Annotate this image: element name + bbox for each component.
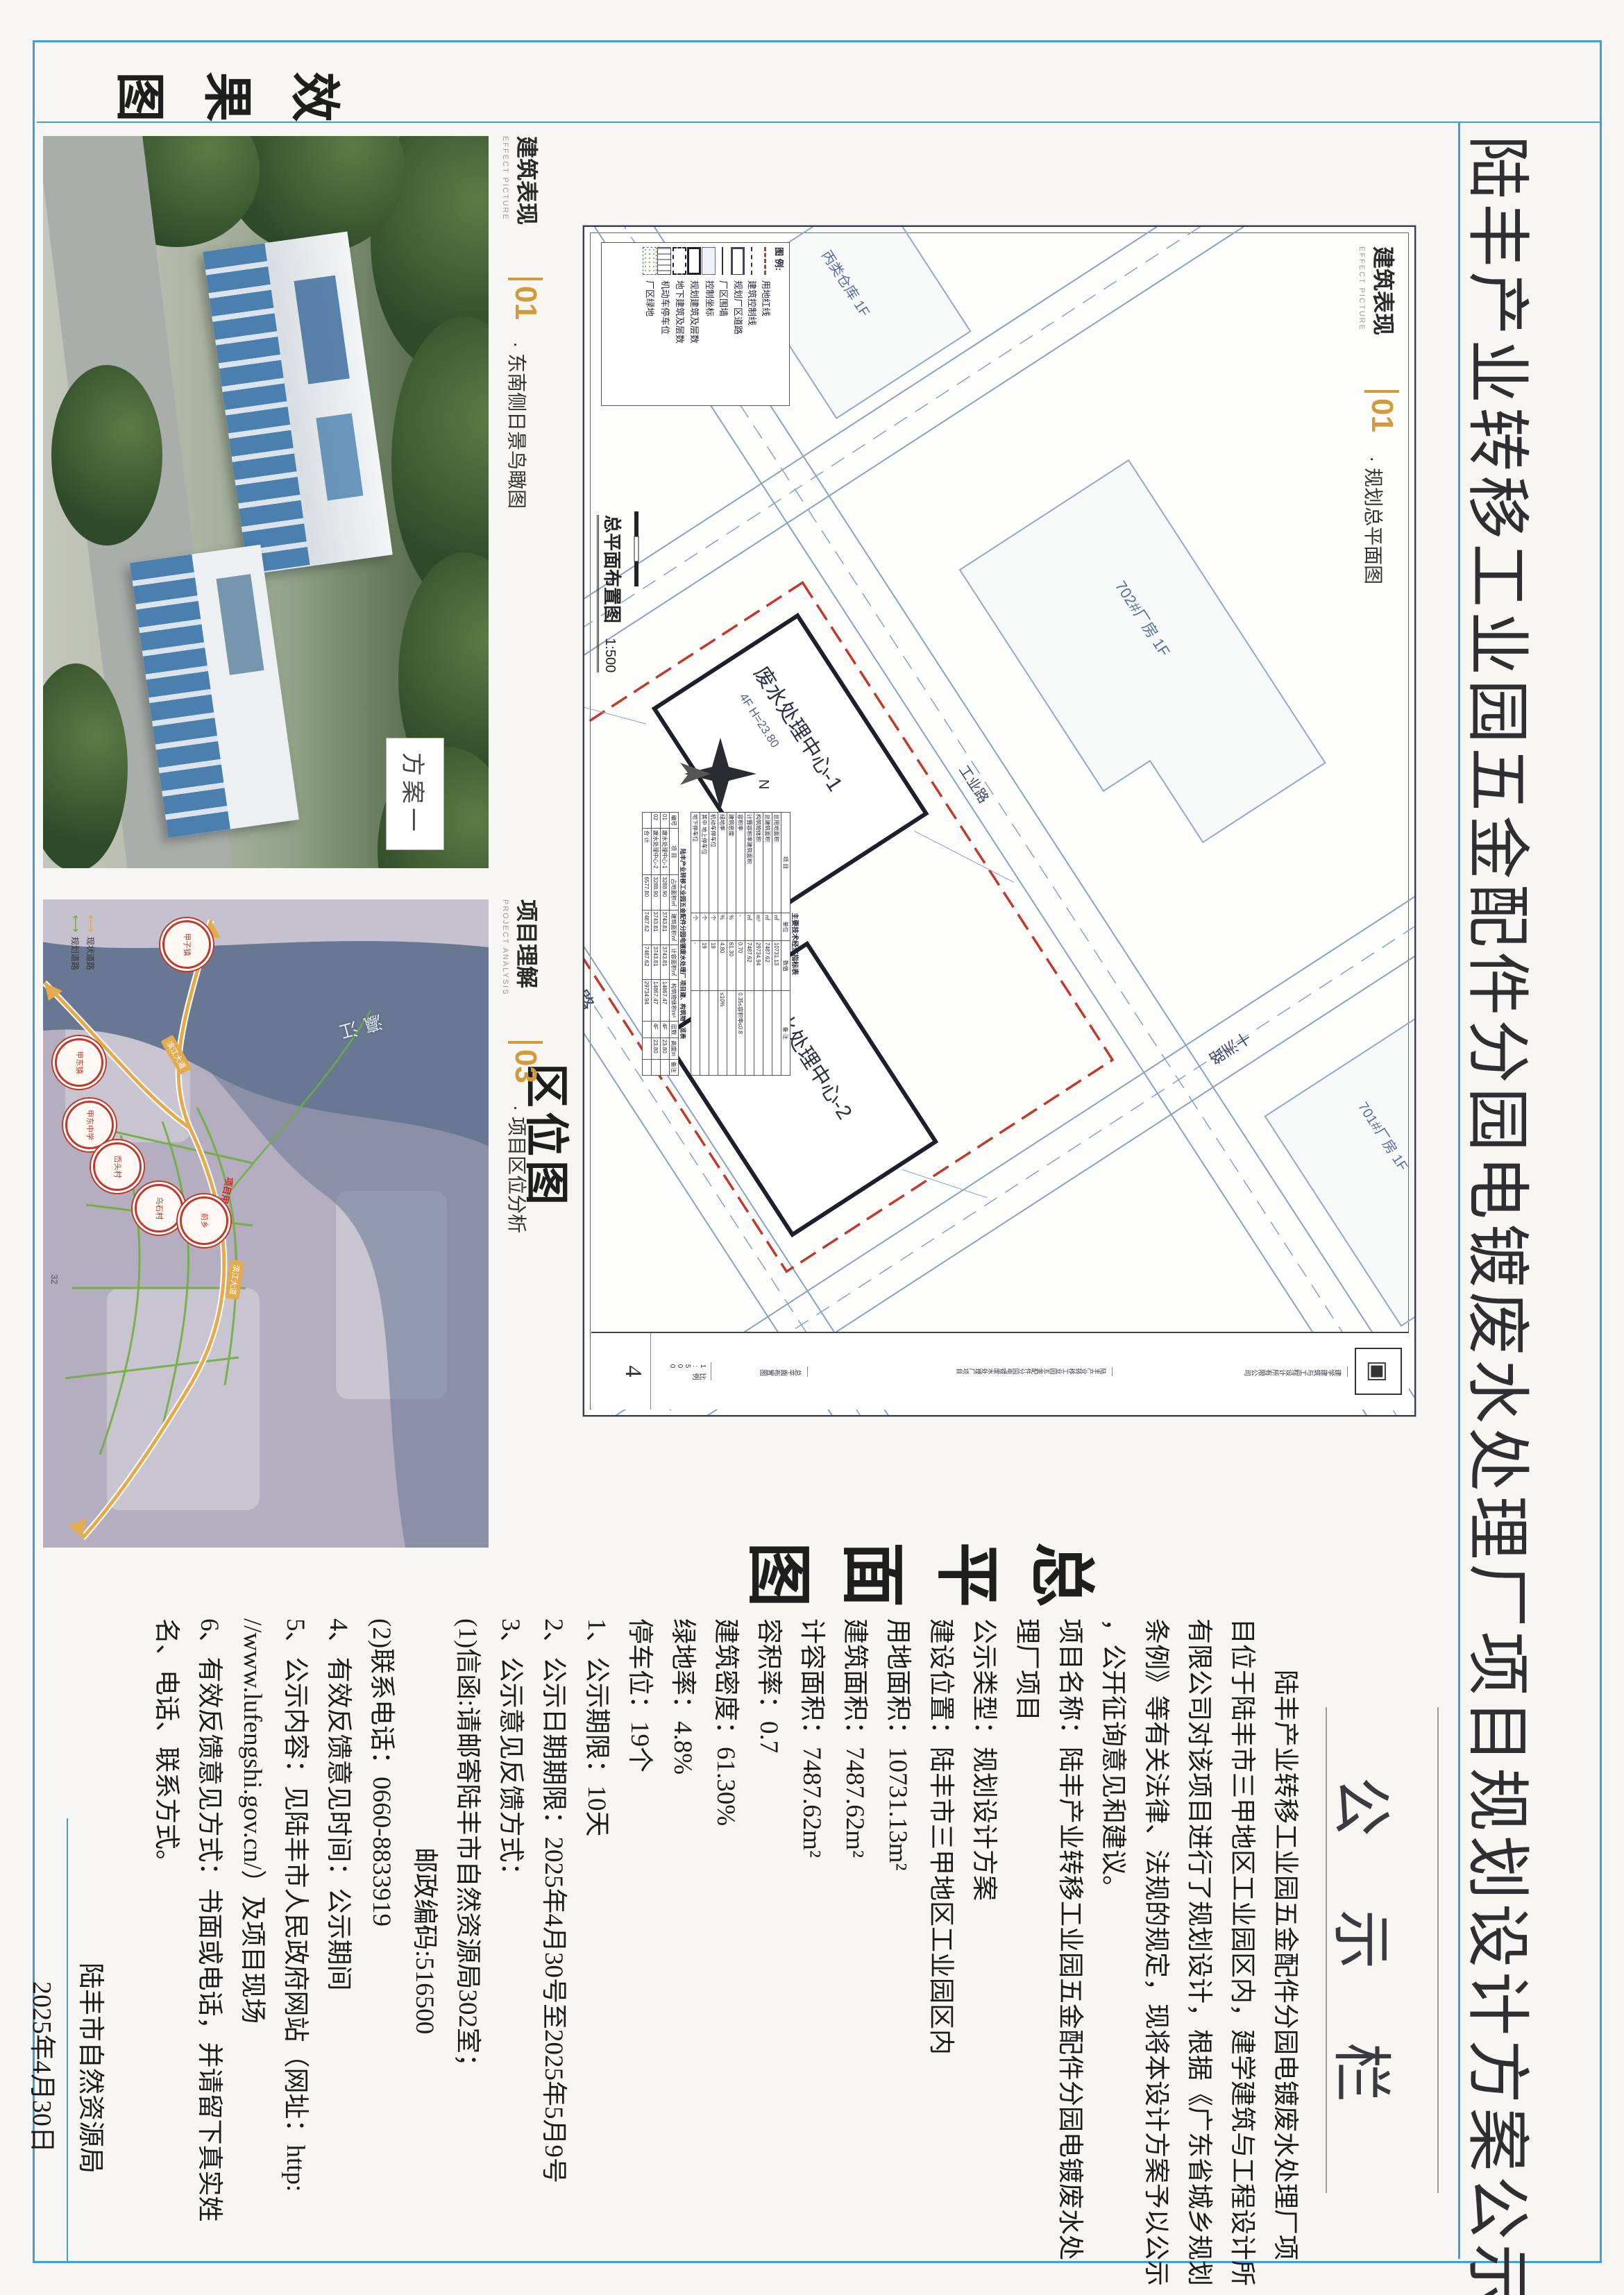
- parking-swatch: [657, 247, 671, 275]
- announcement-line: 目位于陆丰市三甲地区工业园区内，建学建筑与工程设计所: [1220, 1618, 1263, 2260]
- table-row: 其中 地上停车位个19: [700, 813, 709, 1076]
- green-arrow-icon: ⟷: [69, 915, 83, 933]
- scanned-poster: 陆丰产业转移工业园五金配件分园电镀废水处理厂项目规划设计方案公示 效果图 建筑表…: [0, 0, 1624, 2295]
- titleblock-sheet-number: 4: [620, 1333, 651, 1409]
- table-row: 总用地面积㎡10731.13: [772, 813, 781, 1076]
- scheme-tag-label: 方案一: [398, 752, 432, 836]
- signature-date: 2025年4月30日: [26, 1618, 64, 2153]
- wall-swatch: [722, 247, 723, 275]
- announcement-line: 用地面积：10731.13m²: [876, 1618, 919, 2260]
- legend-title: 图 例:: [773, 247, 786, 401]
- announcement-line: 4、有效反馈意见时间：公示期间: [316, 1618, 360, 2260]
- announcement-line: 6、有效反馈意见方式：书面或电话，并请留下真实姓: [187, 1618, 230, 2260]
- river: [43, 899, 489, 1548]
- place-circle: 岙头村: [93, 1142, 142, 1191]
- place-circle: 乌石村: [135, 1184, 183, 1233]
- announcement-line: 5、公示内容：见陆丰市人民政府网站（网址：http:: [273, 1618, 316, 2260]
- announcement-line: 名、电话、联系方式。: [144, 1618, 187, 2260]
- underground-swatch: [673, 247, 686, 275]
- announcement-line: 建设位置：陆丰市三甲地区工业园区内: [919, 1618, 962, 2260]
- section-label-effect: 效果图: [79, 56, 341, 128]
- legend-item: 厂区绿地: [643, 247, 657, 401]
- rendered-building-main: [203, 232, 392, 575]
- announcement-line: 邮政编码:516500: [403, 1618, 446, 2260]
- indicator-table-title: 主要技术经济指标表: [790, 812, 801, 1076]
- road-swatch: [731, 247, 745, 275]
- table-row: 构筑物体积m³29734.94: [754, 813, 763, 1076]
- section-label-siteplan: 总平面图: [719, 1521, 1097, 1616]
- place-circle: 甲子镇: [162, 920, 211, 969]
- tree-canopy: [51, 365, 162, 545]
- svg-text:N: N: [756, 779, 771, 789]
- legend-item: 控制坐标: [702, 247, 716, 401]
- board-rule-top: [1437, 1707, 1439, 2193]
- titleblock-project: 陆丰产业转移工业园五金配件分园电镀废水处理厂项目: [808, 1367, 1113, 1376]
- red-line-swatch: [764, 247, 766, 275]
- announcement-line: 建筑面积：7487.62m²: [833, 1618, 876, 2260]
- announcement-line: 停车位：19个: [618, 1618, 661, 2260]
- legend-item: 规划厂区道路: [731, 247, 745, 401]
- signature-rule: [67, 1818, 68, 2261]
- titleblock-company: 建学建筑与工程设计所有限公司: [1113, 1366, 1348, 1377]
- scheme-tag: 方案一: [386, 738, 444, 850]
- orange-arrow-icon: ⟷: [84, 915, 99, 933]
- table-row: 绿地率%4.80≤10%: [718, 813, 727, 1076]
- place-circle: 甲东中学: [65, 1101, 114, 1149]
- sheet-titleblock: ▣ 建学建筑与工程设计所有限公司 陆丰产业转移工业园五金配件分园电镀废水处理厂项…: [591, 1332, 1409, 1409]
- announcement-line: (2)联系电话：0660-8833919: [360, 1618, 403, 2260]
- board-header: 公 示 栏: [1323, 1777, 1410, 2131]
- table-row: 02废水处理中心-23288.903743.813743.8114867.474…: [652, 813, 661, 1076]
- table-row: 01废水处理中心-13288.903743.813743.8114867.474…: [661, 813, 670, 1076]
- table-row: 容积率-0.700.35≤容积率≤0.8: [736, 813, 745, 1076]
- building-swatch: [687, 247, 701, 275]
- place-circle: 前乡: [180, 1196, 228, 1245]
- announcement-line: 条例》等有关法律、法规的规定，现将本设计方案予以公示: [1134, 1618, 1177, 2260]
- announcement-line: 绿地率：4.8%: [661, 1618, 704, 2260]
- effect-band-en: EFFECT PICTURE: [501, 136, 509, 221]
- announcement-line: 3、公示意见反馈方式：: [489, 1618, 532, 2260]
- table-row: 合 计6577.807487.627487.6229734.94: [643, 813, 652, 1076]
- titleblock-scale: 比例 1:500: [651, 1362, 711, 1380]
- map-legend-planned: ⟷ 规划道路: [68, 915, 83, 970]
- analysis-band-en: PROJECT ANALYSIS: [501, 899, 509, 996]
- indicator-table: 主要技术经济指标表 项 目单位数值备 注 总用地面积㎡10731.13 总建筑面…: [691, 812, 801, 1076]
- company-logo: ▣: [1355, 1348, 1402, 1395]
- announcement-line: (1)信函:请邮寄陆丰市自然资源局302室；: [446, 1618, 489, 2260]
- table-row: 计算容积率建筑面积㎡7487.62: [745, 813, 754, 1076]
- analysis-band-cn: 项目理解: [514, 899, 539, 988]
- announcement-line: 容积率：0.7: [747, 1618, 790, 2260]
- buildings-table: 陆丰产业转移工业园五金配件分园电镀废水处理厂 项目建、构筑物一览表 编号项 目占…: [642, 812, 687, 1076]
- roof-unit: [216, 574, 264, 675]
- announcement-line: 建筑密度：61.30%: [704, 1618, 747, 2260]
- table-row: 总建筑面积㎡7487.62: [763, 813, 772, 1076]
- table-row: 建筑密度%61.30: [727, 813, 736, 1076]
- drawing-title: 总平面布置图 1:500: [597, 515, 626, 672]
- control-line-swatch: [751, 247, 752, 275]
- map-page-number: 32: [49, 1274, 60, 1284]
- rendering-image: 方案一: [43, 136, 489, 868]
- drawing-title-text: 总平面布置图: [602, 515, 623, 623]
- announcement-line: 1、公示期限：10天: [575, 1618, 618, 2260]
- legend-item: 规划建筑及层数: [687, 247, 702, 401]
- announcement-line: ，公开征询意见和建议。: [1091, 1618, 1134, 2260]
- table-row: 地下停车位个-: [691, 813, 700, 1076]
- legend-item: 机动车停车位: [657, 247, 672, 401]
- announcement-line: 理厂项目: [1005, 1618, 1048, 2260]
- effect-band-subtitle: · 东南侧日景鸟瞰图: [504, 341, 532, 509]
- landscape-document: 陆丰产业转移工业园五金配件分园电镀废水处理厂项目规划设计方案公示 效果图 建筑表…: [0, 0, 1624, 2295]
- coord-swatch: [702, 247, 716, 275]
- scale-bar: [634, 511, 638, 586]
- page-title: 陆丰产业转移工业园五金配件分园电镀废水处理厂项目规划设计方案公示: [1457, 135, 1549, 2295]
- legend-item: 地下建筑及层数: [673, 247, 687, 401]
- plan-legend: 图 例: 用地红线 建筑控制线 规划厂区道路 厂区围墙 控制坐标 规划建筑及层数…: [601, 242, 790, 406]
- location-map: 瀛江 滨江大道 滨江大道 项目用地 甲子镇 甲东镇 甲东中学 岙头村 乌石村 前…: [43, 899, 489, 1548]
- table-row: 机动车停车位个19: [709, 813, 718, 1076]
- announcement-line: //www.lufengshi.gov.cn/）及项目现场: [230, 1618, 273, 2260]
- place-circle: 甲东镇: [55, 1038, 103, 1087]
- siteplan-sheet: 建筑表现 EFFECT PICTURE 01 · 规划总平面图: [583, 226, 1416, 1416]
- analysis-band: 项目理解 PROJECT ANALYSIS: [500, 899, 544, 996]
- announcement-line: 项目名称：陆丰产业转移工业园五金配件分园电镀废水处: [1048, 1618, 1091, 2260]
- announcement-line: 有限公司对该项目进行了规划设计，根据《广东省城乡规划: [1177, 1618, 1220, 2260]
- analysis-band-subtitle: · 项目区位分析: [504, 1105, 532, 1233]
- announcement-body: 陆丰产业转移工业园五金配件分园电镀废水处理厂项 目位于陆丰市三甲地区工业园区内，…: [144, 1618, 1306, 2260]
- map-legend: ⟷ 现状道路 ⟷ 规划道路: [68, 915, 99, 970]
- legend-item: 厂区围墙: [717, 247, 731, 401]
- titleblock-drawing: 总平面布置图: [711, 1366, 808, 1377]
- green-swatch: [643, 247, 657, 275]
- svg-text:十洲路: 十洲路: [1206, 1028, 1253, 1067]
- announcement-line: 2、公示日期期限：2025年4月30号至2025年5月9号: [532, 1618, 575, 2260]
- map-legend-existing: ⟷ 现状道路: [83, 915, 99, 970]
- effect-band-number: 01: [508, 278, 543, 320]
- board-rule-bottom: [1326, 1707, 1327, 2193]
- effect-band-cn: 建筑表现: [514, 136, 539, 225]
- announcement-line: 计容面积：7487.62m²: [790, 1618, 833, 2260]
- buildings-table-title: 陆丰产业转移工业园五金配件分园电镀废水处理厂 项目建、构筑物一览表: [679, 812, 687, 1076]
- announcement-line: 陆丰产业转移工业园五金配件分园电镀废水处理厂项: [1263, 1618, 1306, 2260]
- effect-band: 建筑表现 EFFECT PICTURE: [500, 136, 544, 225]
- announcement-line: 公示类型：规划设计方案: [962, 1618, 1005, 2260]
- drawing-scale: 1:500: [602, 638, 618, 672]
- analysis-band-number: 03: [508, 1041, 543, 1083]
- legend-item: 建筑控制线: [745, 247, 759, 401]
- signature-agency: 陆丰市自然资源局: [74, 1618, 112, 2174]
- legend-item: 用地红线: [759, 247, 773, 401]
